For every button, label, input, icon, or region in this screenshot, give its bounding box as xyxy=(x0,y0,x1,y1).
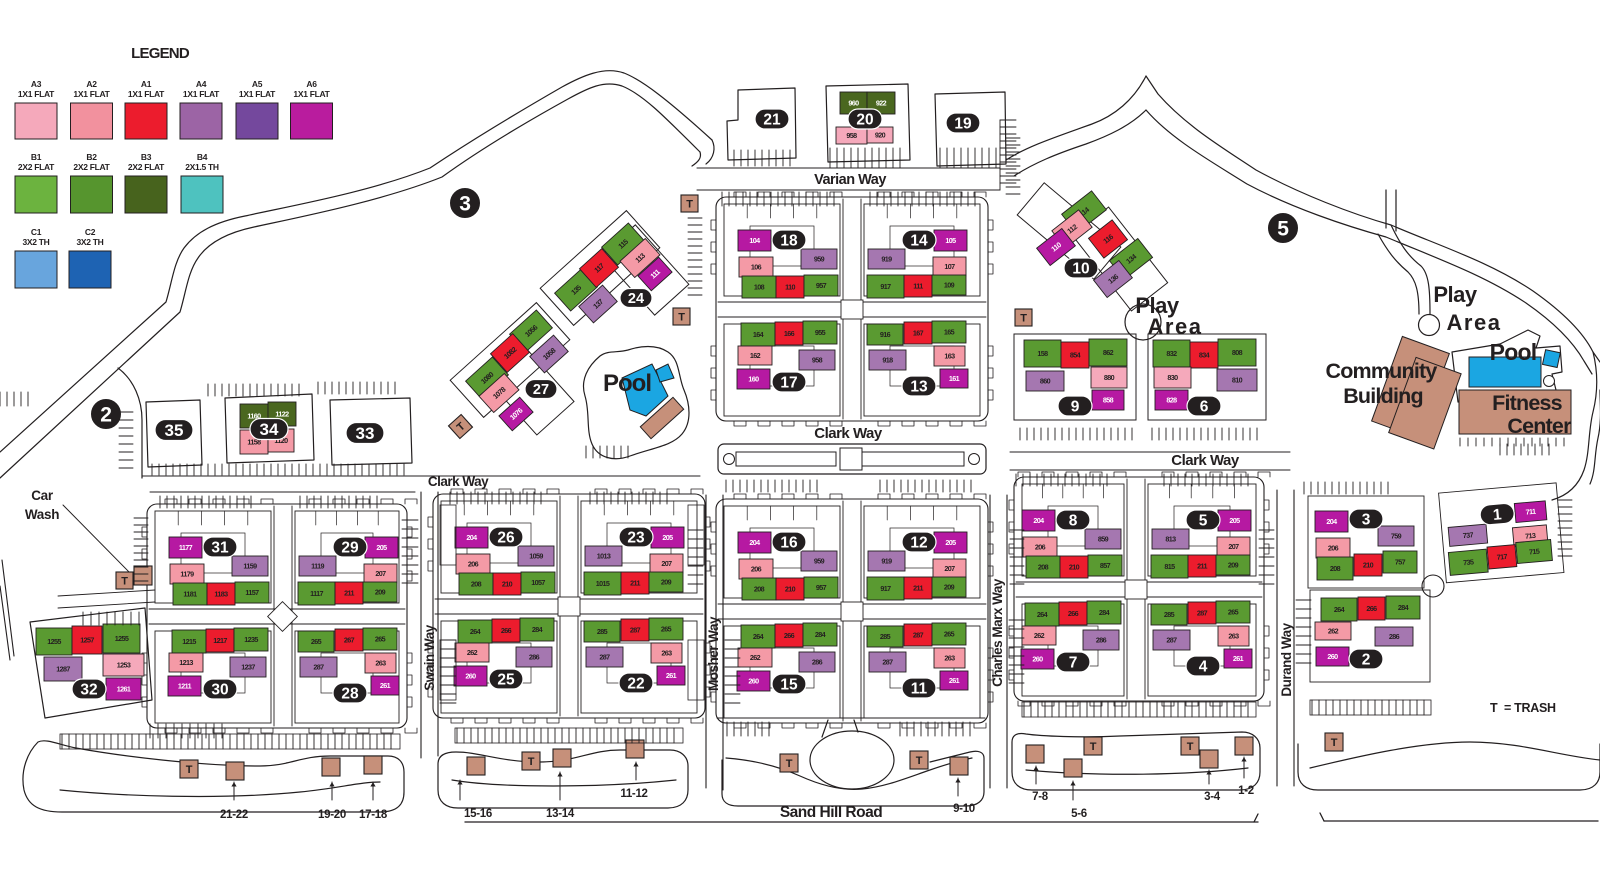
svg-text:Durand Way: Durand Way xyxy=(1279,622,1294,696)
svg-text:13: 13 xyxy=(910,379,928,396)
svg-text:1179: 1179 xyxy=(180,570,194,579)
svg-text:916: 916 xyxy=(880,330,891,339)
svg-text:210: 210 xyxy=(502,580,513,589)
svg-text:208: 208 xyxy=(1330,564,1341,573)
svg-text:266: 266 xyxy=(1366,604,1377,613)
svg-text:3: 3 xyxy=(459,193,470,216)
svg-text:917: 917 xyxy=(880,584,891,593)
svg-text:957: 957 xyxy=(816,281,827,290)
svg-text:16: 16 xyxy=(780,535,798,552)
svg-text:8: 8 xyxy=(1069,513,1078,530)
svg-text:759: 759 xyxy=(1391,532,1402,541)
svg-text:880: 880 xyxy=(1104,373,1115,382)
svg-text:211: 211 xyxy=(344,589,354,598)
svg-text:287: 287 xyxy=(1197,609,1208,618)
svg-text:6: 6 xyxy=(1200,399,1209,416)
svg-text:1122: 1122 xyxy=(275,410,289,419)
svg-text:832: 832 xyxy=(1166,349,1177,358)
svg-text:711: 711 xyxy=(1525,507,1536,517)
svg-text:106: 106 xyxy=(751,263,762,272)
svg-text:12: 12 xyxy=(910,535,927,552)
svg-text:31: 31 xyxy=(211,540,229,557)
svg-text:14: 14 xyxy=(910,233,928,250)
svg-text:19: 19 xyxy=(954,116,972,133)
svg-text:209: 209 xyxy=(1228,561,1239,570)
svg-text:9-10: 9-10 xyxy=(953,803,975,815)
svg-text:20: 20 xyxy=(856,112,873,129)
svg-text:210: 210 xyxy=(1069,563,1080,572)
svg-text:285: 285 xyxy=(597,627,608,636)
svg-text:27: 27 xyxy=(533,382,549,398)
svg-text:T: T xyxy=(686,199,693,211)
svg-text:109: 109 xyxy=(944,281,955,290)
svg-text:862: 862 xyxy=(1103,348,1114,357)
svg-text:286: 286 xyxy=(1389,632,1400,641)
svg-text:T: T xyxy=(1020,313,1027,325)
svg-text:Charles Marx Way: Charles Marx Way xyxy=(990,578,1005,687)
svg-text:285: 285 xyxy=(880,632,891,641)
svg-text:1253: 1253 xyxy=(117,661,131,670)
svg-text:19-20: 19-20 xyxy=(318,809,346,821)
svg-text:261: 261 xyxy=(666,671,677,680)
svg-text:1217: 1217 xyxy=(213,636,227,645)
svg-text:T: T xyxy=(528,756,535,768)
svg-text:207: 207 xyxy=(375,569,386,578)
svg-text:265: 265 xyxy=(1228,608,1239,617)
svg-text:T: T xyxy=(1187,741,1194,753)
svg-text:263: 263 xyxy=(661,649,672,658)
svg-text:210: 210 xyxy=(785,585,796,594)
svg-text:A1: A1 xyxy=(141,79,152,89)
svg-text:209: 209 xyxy=(375,588,386,597)
svg-text:B4: B4 xyxy=(197,152,208,162)
svg-text:1057: 1057 xyxy=(531,578,545,587)
svg-text:T: T xyxy=(1490,701,1498,715)
svg-text:7: 7 xyxy=(1069,655,1078,672)
svg-text:261: 261 xyxy=(949,676,960,685)
svg-text:266: 266 xyxy=(1068,609,1079,618)
svg-text:1X1 FLAT: 1X1 FLAT xyxy=(128,89,165,99)
svg-text:Sand Hill Road: Sand Hill Road xyxy=(780,804,882,821)
svg-text:264: 264 xyxy=(470,627,481,636)
svg-text:7-8: 7-8 xyxy=(1032,791,1049,803)
svg-text:21-22: 21-22 xyxy=(220,809,248,821)
svg-text:206: 206 xyxy=(1328,544,1339,553)
svg-text:LEGEND: LEGEND xyxy=(131,45,190,62)
svg-text:260: 260 xyxy=(748,677,759,686)
svg-text:284: 284 xyxy=(532,625,543,634)
svg-text:2X2 FLAT: 2X2 FLAT xyxy=(128,162,165,172)
svg-text:266: 266 xyxy=(784,631,795,640)
svg-text:Swain Way: Swain Way xyxy=(422,624,437,691)
svg-text:1255: 1255 xyxy=(47,637,61,646)
svg-text:1117: 1117 xyxy=(310,589,323,598)
svg-text:1211: 1211 xyxy=(178,682,192,691)
svg-text:261: 261 xyxy=(380,681,391,690)
svg-text:206: 206 xyxy=(751,565,762,574)
svg-text:284: 284 xyxy=(1398,603,1409,612)
svg-text:717: 717 xyxy=(1496,552,1508,562)
svg-text:Pool: Pool xyxy=(1490,339,1537,365)
svg-text:Center: Center xyxy=(1507,414,1572,438)
svg-text:207: 207 xyxy=(1228,542,1239,551)
svg-text:262: 262 xyxy=(1034,631,1045,640)
svg-text:813: 813 xyxy=(1165,535,1176,544)
svg-text:1X1 FLAT: 1X1 FLAT xyxy=(239,89,276,99)
svg-text:Building: Building xyxy=(1343,384,1423,408)
svg-text:830: 830 xyxy=(1167,373,1178,382)
svg-text:287: 287 xyxy=(1166,636,1177,645)
svg-text:15: 15 xyxy=(780,677,798,694)
svg-text:24: 24 xyxy=(628,291,644,307)
svg-text:29: 29 xyxy=(341,540,359,557)
svg-text:919: 919 xyxy=(881,255,892,264)
svg-text:10: 10 xyxy=(1072,261,1089,278)
svg-text:286: 286 xyxy=(1096,636,1107,645)
svg-text:210: 210 xyxy=(1363,561,1374,570)
svg-text:854: 854 xyxy=(1070,351,1081,360)
svg-text:1213: 1213 xyxy=(179,658,193,667)
svg-text:T: T xyxy=(186,764,193,776)
svg-text:22: 22 xyxy=(627,676,644,693)
svg-text:209: 209 xyxy=(661,578,672,587)
svg-text:815: 815 xyxy=(1164,562,1175,571)
svg-text:108: 108 xyxy=(754,283,765,292)
svg-text:261: 261 xyxy=(1233,654,1244,663)
svg-text:735: 735 xyxy=(1463,557,1475,567)
svg-text:211: 211 xyxy=(913,584,923,593)
svg-text:264: 264 xyxy=(753,632,764,641)
svg-text:859: 859 xyxy=(1098,535,1109,544)
svg-text:166: 166 xyxy=(784,329,795,338)
svg-text:Clark Way: Clark Way xyxy=(814,425,883,442)
svg-text:834: 834 xyxy=(1199,351,1210,360)
svg-text:857: 857 xyxy=(1100,561,1111,570)
svg-text:260: 260 xyxy=(465,672,476,681)
svg-text:1255: 1255 xyxy=(115,634,129,643)
svg-text:286: 286 xyxy=(812,658,823,667)
svg-text:2X2 FLAT: 2X2 FLAT xyxy=(73,162,110,172)
svg-text:2: 2 xyxy=(1362,652,1371,669)
svg-text:C2: C2 xyxy=(85,227,96,237)
svg-text:960: 960 xyxy=(848,99,859,108)
svg-text:265: 265 xyxy=(311,637,322,646)
svg-text:11: 11 xyxy=(911,681,928,698)
svg-text:35: 35 xyxy=(165,421,184,440)
svg-text:205: 205 xyxy=(662,533,673,542)
svg-text:A5: A5 xyxy=(252,79,263,89)
svg-text:1183: 1183 xyxy=(214,590,228,599)
svg-text:265: 265 xyxy=(944,630,955,639)
svg-text:287: 287 xyxy=(630,626,641,635)
svg-text:204: 204 xyxy=(1326,517,1337,526)
svg-text:959: 959 xyxy=(814,255,825,264)
svg-text:209: 209 xyxy=(944,583,955,592)
svg-text:715: 715 xyxy=(1529,547,1541,557)
svg-text:957: 957 xyxy=(816,583,827,592)
svg-text:286: 286 xyxy=(529,653,540,662)
svg-text:919: 919 xyxy=(881,557,892,566)
svg-text:A4: A4 xyxy=(196,79,207,89)
svg-text:1013: 1013 xyxy=(597,552,611,561)
svg-text:163: 163 xyxy=(944,352,955,361)
svg-text:204: 204 xyxy=(1033,516,1044,525)
svg-text:1157: 1157 xyxy=(245,588,259,597)
svg-text:2X1.5 TH: 2X1.5 TH xyxy=(185,162,219,172)
svg-text:828: 828 xyxy=(1166,396,1177,405)
svg-text:111: 111 xyxy=(913,282,923,291)
svg-text:Clark Way: Clark Way xyxy=(1171,452,1240,469)
svg-text:205: 205 xyxy=(945,538,956,547)
svg-text:918: 918 xyxy=(882,356,893,365)
svg-text:105: 105 xyxy=(945,236,956,245)
svg-text:160: 160 xyxy=(748,375,759,384)
svg-text:104: 104 xyxy=(749,236,760,245)
svg-text:9: 9 xyxy=(1071,399,1080,416)
svg-text:1-2: 1-2 xyxy=(1238,785,1254,797)
svg-text:1237: 1237 xyxy=(241,663,255,672)
svg-text:262: 262 xyxy=(467,648,478,657)
svg-text:B3: B3 xyxy=(141,152,152,162)
svg-text:266: 266 xyxy=(501,626,512,635)
svg-text:A6: A6 xyxy=(306,79,317,89)
svg-text:1015: 1015 xyxy=(596,579,610,588)
svg-text:263: 263 xyxy=(944,654,955,663)
svg-text:1119: 1119 xyxy=(311,562,324,571)
svg-text:810: 810 xyxy=(1232,376,1243,385)
svg-text:Wash: Wash xyxy=(25,507,59,522)
svg-text:1257: 1257 xyxy=(80,636,94,645)
svg-text:5-6: 5-6 xyxy=(1071,808,1087,820)
svg-text:284: 284 xyxy=(815,630,826,639)
svg-text:Pool: Pool xyxy=(603,370,651,397)
svg-text:1X1 FLAT: 1X1 FLAT xyxy=(18,89,55,99)
svg-text:287: 287 xyxy=(882,658,893,667)
svg-text:3X2 TH: 3X2 TH xyxy=(22,237,49,247)
svg-text:Clark Way: Clark Way xyxy=(428,474,489,489)
svg-text:A3: A3 xyxy=(31,79,42,89)
svg-text:917: 917 xyxy=(880,282,891,291)
svg-text:Play: Play xyxy=(1433,282,1478,307)
svg-text:B2: B2 xyxy=(86,152,97,162)
svg-text:Mosher Way: Mosher Way xyxy=(706,616,721,691)
svg-text:17-18: 17-18 xyxy=(359,809,388,821)
svg-text:713: 713 xyxy=(1525,531,1537,541)
svg-text:955: 955 xyxy=(815,328,826,337)
svg-text:1059: 1059 xyxy=(529,552,543,561)
svg-text:1235: 1235 xyxy=(244,635,258,644)
svg-text:264: 264 xyxy=(1037,610,1048,619)
svg-text:262: 262 xyxy=(750,653,761,662)
svg-text:1287: 1287 xyxy=(56,665,70,674)
svg-text:158: 158 xyxy=(1037,349,1048,358)
svg-text:260: 260 xyxy=(1327,652,1338,661)
svg-text:17: 17 xyxy=(780,375,797,392)
svg-text:958: 958 xyxy=(812,356,823,365)
svg-text:162: 162 xyxy=(750,351,761,360)
svg-text:207: 207 xyxy=(661,559,672,568)
svg-text:263: 263 xyxy=(1228,632,1239,641)
svg-text:161: 161 xyxy=(949,374,960,383)
svg-text:B1: B1 xyxy=(31,152,42,162)
svg-text:107: 107 xyxy=(944,262,955,271)
svg-text:1215: 1215 xyxy=(182,637,196,646)
svg-text:263: 263 xyxy=(375,659,386,668)
svg-text:260: 260 xyxy=(1032,655,1043,664)
svg-text:205: 205 xyxy=(1229,516,1240,525)
svg-text:3X2 TH: 3X2 TH xyxy=(76,237,103,247)
svg-text:287: 287 xyxy=(313,663,324,672)
svg-text:3-4: 3-4 xyxy=(1204,791,1221,803)
svg-text:T: T xyxy=(1090,741,1097,753)
svg-text:25: 25 xyxy=(497,672,515,689)
svg-text:207: 207 xyxy=(944,564,955,573)
svg-text:211: 211 xyxy=(1197,562,1207,571)
svg-text:205: 205 xyxy=(376,543,387,552)
svg-text:1177: 1177 xyxy=(179,543,193,552)
svg-text:34: 34 xyxy=(260,420,279,439)
svg-text:737: 737 xyxy=(1462,530,1474,540)
svg-text:164: 164 xyxy=(753,330,764,339)
svg-text:265: 265 xyxy=(661,625,672,634)
svg-text:1159: 1159 xyxy=(243,562,257,571)
svg-text:208: 208 xyxy=(471,580,482,589)
svg-text:26: 26 xyxy=(497,530,515,547)
svg-text:287: 287 xyxy=(913,631,924,640)
svg-text:262: 262 xyxy=(1328,627,1339,636)
svg-text:3: 3 xyxy=(1362,512,1371,529)
svg-text:110: 110 xyxy=(785,283,795,292)
svg-text:204: 204 xyxy=(749,538,760,547)
svg-text:T: T xyxy=(121,576,128,588)
svg-text:A2: A2 xyxy=(86,79,97,89)
svg-text:1181: 1181 xyxy=(183,590,197,599)
svg-text:858: 858 xyxy=(1103,396,1114,405)
svg-text:Fitness: Fitness xyxy=(1492,391,1563,415)
svg-text:32: 32 xyxy=(80,682,97,699)
svg-text:C1: C1 xyxy=(31,227,42,237)
svg-text:265: 265 xyxy=(375,635,386,644)
svg-text:5: 5 xyxy=(1199,513,1208,530)
svg-text:922: 922 xyxy=(876,99,887,108)
svg-text:287: 287 xyxy=(599,653,610,662)
svg-text:Car: Car xyxy=(31,488,54,503)
svg-text:Varian Way: Varian Way xyxy=(814,172,886,188)
svg-text:T: T xyxy=(786,758,793,770)
svg-text:208: 208 xyxy=(754,585,765,594)
svg-text:T: T xyxy=(1331,737,1338,749)
svg-text:264: 264 xyxy=(1334,605,1345,614)
svg-text:Area: Area xyxy=(1447,310,1502,335)
svg-text:18: 18 xyxy=(780,233,798,250)
svg-text:211: 211 xyxy=(630,579,640,588)
svg-text:Community: Community xyxy=(1325,359,1437,383)
svg-text:285: 285 xyxy=(1164,610,1175,619)
svg-text:267: 267 xyxy=(344,636,355,645)
svg-text:2: 2 xyxy=(100,404,111,427)
svg-text:1X1 FLAT: 1X1 FLAT xyxy=(73,89,110,99)
svg-text:208: 208 xyxy=(1038,563,1049,572)
svg-text:13-14: 13-14 xyxy=(546,808,575,820)
svg-text:167: 167 xyxy=(913,329,924,338)
svg-text:284: 284 xyxy=(1099,608,1110,617)
svg-text:30: 30 xyxy=(211,682,228,699)
svg-text:860: 860 xyxy=(1040,377,1051,386)
svg-text:920: 920 xyxy=(875,131,886,140)
svg-text:5: 5 xyxy=(1277,218,1289,241)
svg-text:4: 4 xyxy=(1199,659,1208,676)
svg-text:959: 959 xyxy=(814,557,825,566)
svg-text:= TRASH: = TRASH xyxy=(1504,701,1556,715)
svg-text:2X2 FLAT: 2X2 FLAT xyxy=(18,162,55,172)
svg-text:165: 165 xyxy=(944,328,955,337)
svg-text:757: 757 xyxy=(1395,558,1406,567)
svg-text:28: 28 xyxy=(341,686,359,703)
svg-text:206: 206 xyxy=(468,560,479,569)
svg-text:1X1 FLAT: 1X1 FLAT xyxy=(293,89,330,99)
svg-text:21: 21 xyxy=(763,112,781,129)
svg-text:23: 23 xyxy=(627,530,645,547)
svg-text:15-16: 15-16 xyxy=(464,808,492,820)
svg-text:T: T xyxy=(678,312,685,324)
svg-text:204: 204 xyxy=(466,533,477,542)
svg-text:206: 206 xyxy=(1035,543,1046,552)
svg-text:808: 808 xyxy=(1232,348,1243,357)
svg-text:33: 33 xyxy=(356,424,375,443)
svg-text:T: T xyxy=(916,755,923,767)
svg-text:1261: 1261 xyxy=(117,685,131,694)
svg-text:1X1 FLAT: 1X1 FLAT xyxy=(183,89,220,99)
svg-text:11-12: 11-12 xyxy=(620,788,647,800)
svg-text:958: 958 xyxy=(846,131,857,140)
